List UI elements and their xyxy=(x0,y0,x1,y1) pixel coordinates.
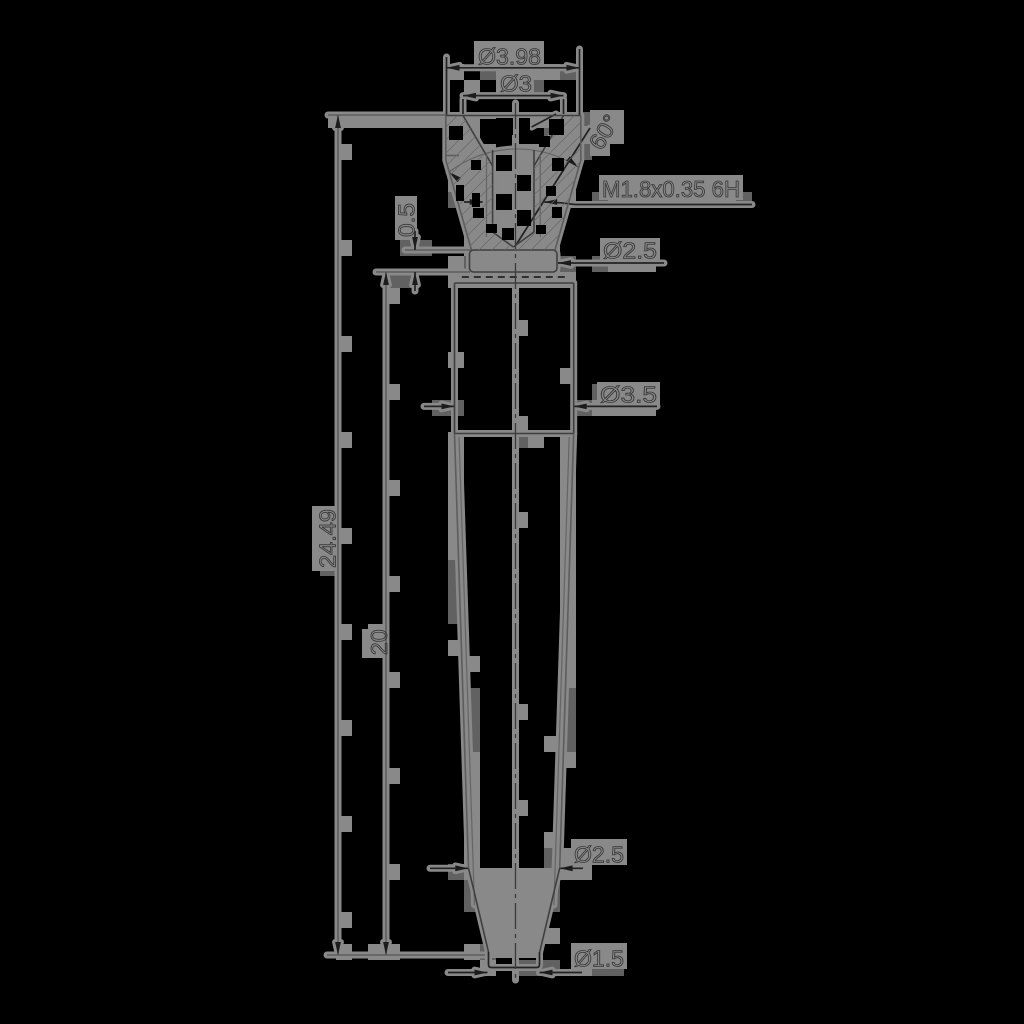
svg-text:Ø2.5: Ø2.5 xyxy=(603,238,657,264)
svg-text:Ø3.5: Ø3.5 xyxy=(600,382,657,408)
svg-text:Ø3.98: Ø3.98 xyxy=(478,44,541,70)
svg-text:20: 20 xyxy=(366,629,392,655)
svg-text:Ø2.5: Ø2.5 xyxy=(574,842,624,868)
svg-text:Ø1.5: Ø1.5 xyxy=(574,946,624,972)
svg-text:M1.8x0.35 6H: M1.8x0.35 6H xyxy=(602,176,740,202)
svg-text:24.49: 24.49 xyxy=(315,509,341,568)
svg-text:0.5: 0.5 xyxy=(394,203,420,237)
svg-text:Ø3: Ø3 xyxy=(500,71,532,97)
